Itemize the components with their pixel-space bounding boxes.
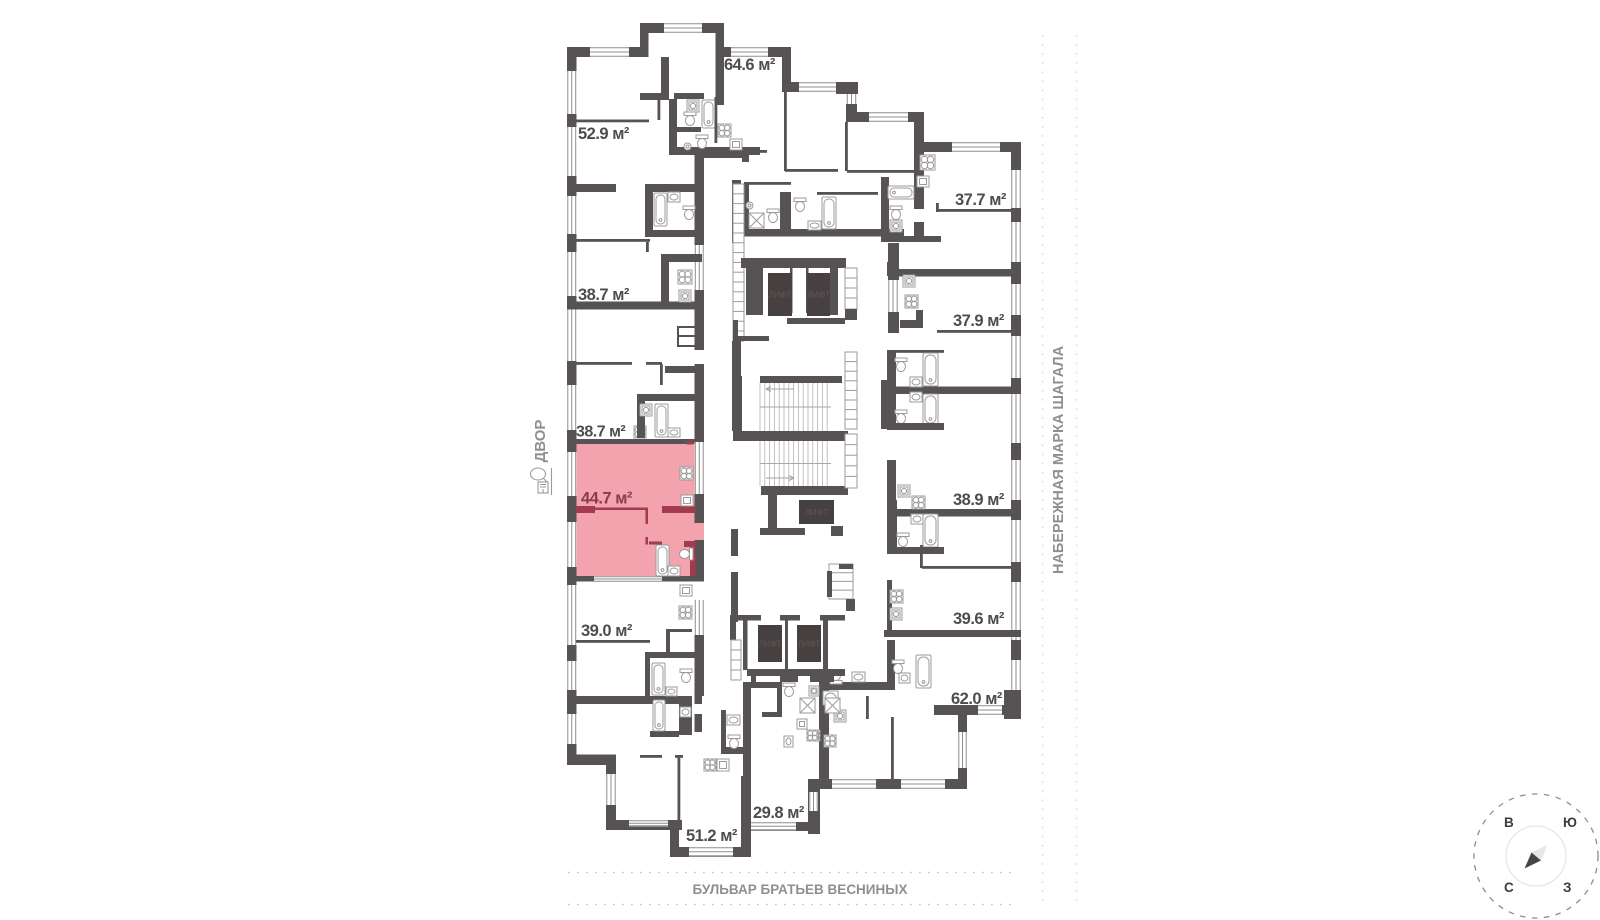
svg-text:Ю: Ю — [1563, 815, 1577, 830]
svg-text:С: С — [1504, 880, 1514, 895]
svg-text:37.9 м²: 37.9 м² — [953, 312, 1005, 330]
svg-text:38.9 м²: 38.9 м² — [953, 491, 1005, 509]
svg-text:37.7 м²: 37.7 м² — [955, 191, 1007, 209]
svg-text:З: З — [1563, 880, 1571, 895]
svg-text:38.7 м²: 38.7 м² — [576, 424, 625, 441]
svg-text:НАБЕРЕЖНАЯ МАРКА ШАГАЛА: НАБЕРЕЖНАЯ МАРКА ШАГАЛА — [1051, 345, 1067, 574]
svg-text:БУЛЬВАР БРАТЬЕВ ВЕСНИНЫХ: БУЛЬВАР БРАТЬЕВ ВЕСНИНЫХ — [693, 882, 908, 897]
svg-text:29.8 м²: 29.8 м² — [753, 804, 805, 822]
svg-text:52.9 м²: 52.9 м² — [578, 125, 630, 143]
svg-text:ЛИФТ: ЛИФТ — [807, 290, 830, 300]
svg-text:44.7 м²: 44.7 м² — [581, 490, 633, 508]
svg-text:51.2 м²: 51.2 м² — [686, 827, 738, 845]
svg-text:ДВОР: ДВОР — [532, 420, 549, 463]
svg-text:ЛИФТ: ЛИФТ — [798, 639, 821, 649]
svg-text:39.0 м²: 39.0 м² — [581, 622, 633, 640]
svg-text:64.6 м²: 64.6 м² — [724, 56, 776, 74]
svg-text:ЛИФТ: ЛИФТ — [769, 290, 792, 300]
svg-text:38.7 м²: 38.7 м² — [578, 286, 630, 304]
svg-text:62.0 м²: 62.0 м² — [951, 690, 1003, 708]
svg-text:ЛИФТ: ЛИФТ — [759, 639, 782, 649]
svg-text:В: В — [1504, 815, 1514, 830]
svg-text:ЛИФТ: ЛИФТ — [805, 507, 828, 517]
svg-text:39.6 м²: 39.6 м² — [953, 610, 1005, 628]
